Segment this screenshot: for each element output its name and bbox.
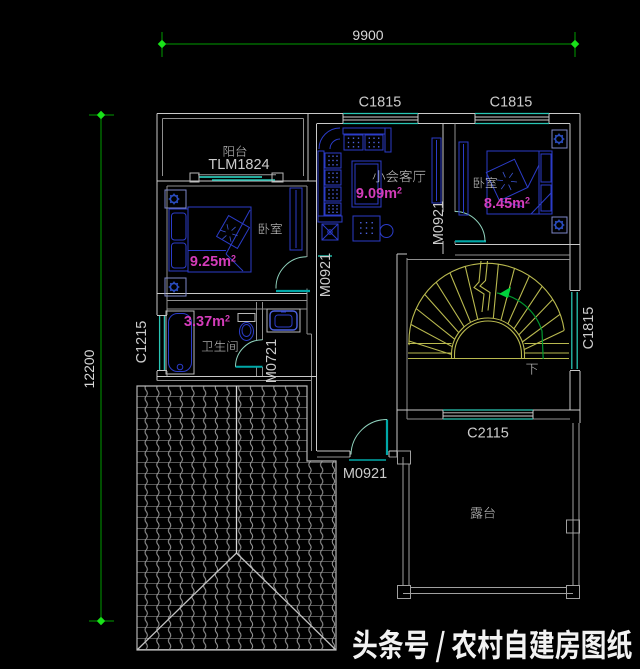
- svg-text:C1815: C1815: [490, 95, 533, 111]
- svg-text:C1815: C1815: [581, 307, 597, 350]
- svg-text:M0721: M0721: [264, 339, 280, 383]
- svg-text:3.37m2: 3.37m2: [184, 314, 230, 331]
- svg-text:12200: 12200: [81, 349, 97, 388]
- svg-text:9900: 9900: [352, 27, 383, 43]
- svg-text:M0921: M0921: [431, 201, 447, 245]
- svg-text:M0921: M0921: [343, 466, 387, 482]
- svg-text:C1215: C1215: [134, 321, 150, 364]
- svg-text:M0921: M0921: [318, 253, 334, 297]
- svg-text:9.25m2: 9.25m2: [190, 254, 236, 271]
- svg-text:C1815: C1815: [359, 95, 402, 111]
- svg-text:8.45m2: 8.45m2: [484, 196, 530, 213]
- svg-text:9.09m2: 9.09m2: [356, 186, 402, 203]
- svg-text:TLM1824: TLM1824: [208, 157, 269, 173]
- svg-text:C2115: C2115: [467, 426, 509, 442]
